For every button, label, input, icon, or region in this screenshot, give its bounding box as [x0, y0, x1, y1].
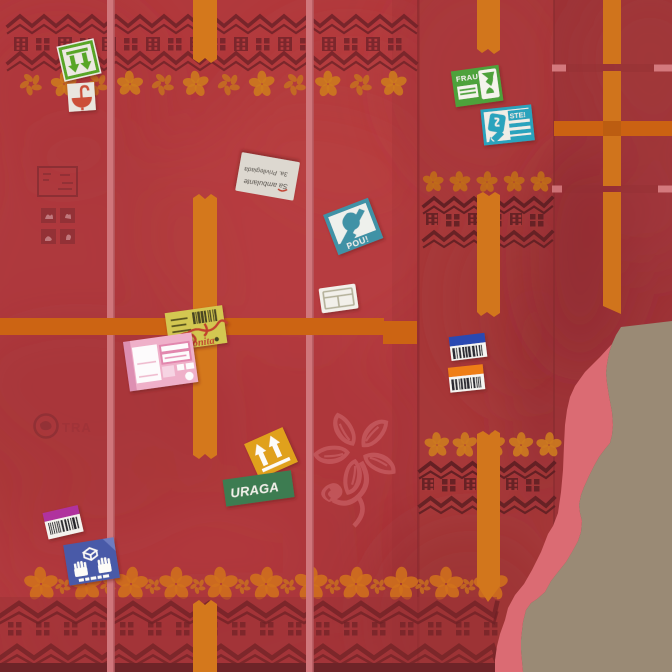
svg-text:TRA: TRA [62, 420, 92, 435]
